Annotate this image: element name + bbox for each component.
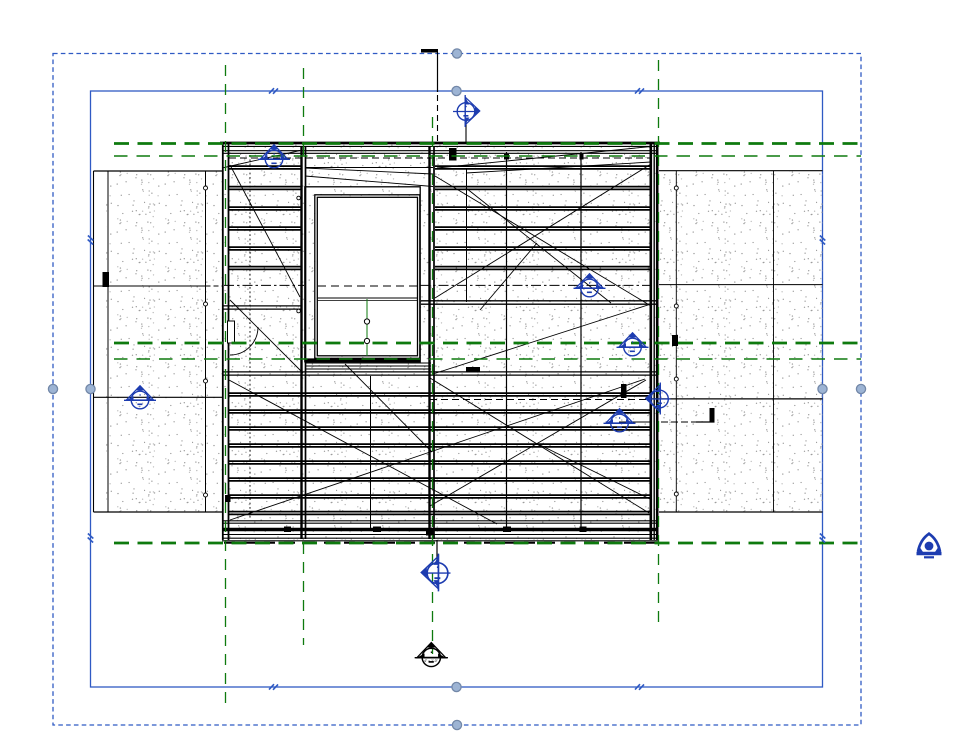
svg-text:4" = 1'-0": 4" = 1'-0" [424, 659, 439, 663]
